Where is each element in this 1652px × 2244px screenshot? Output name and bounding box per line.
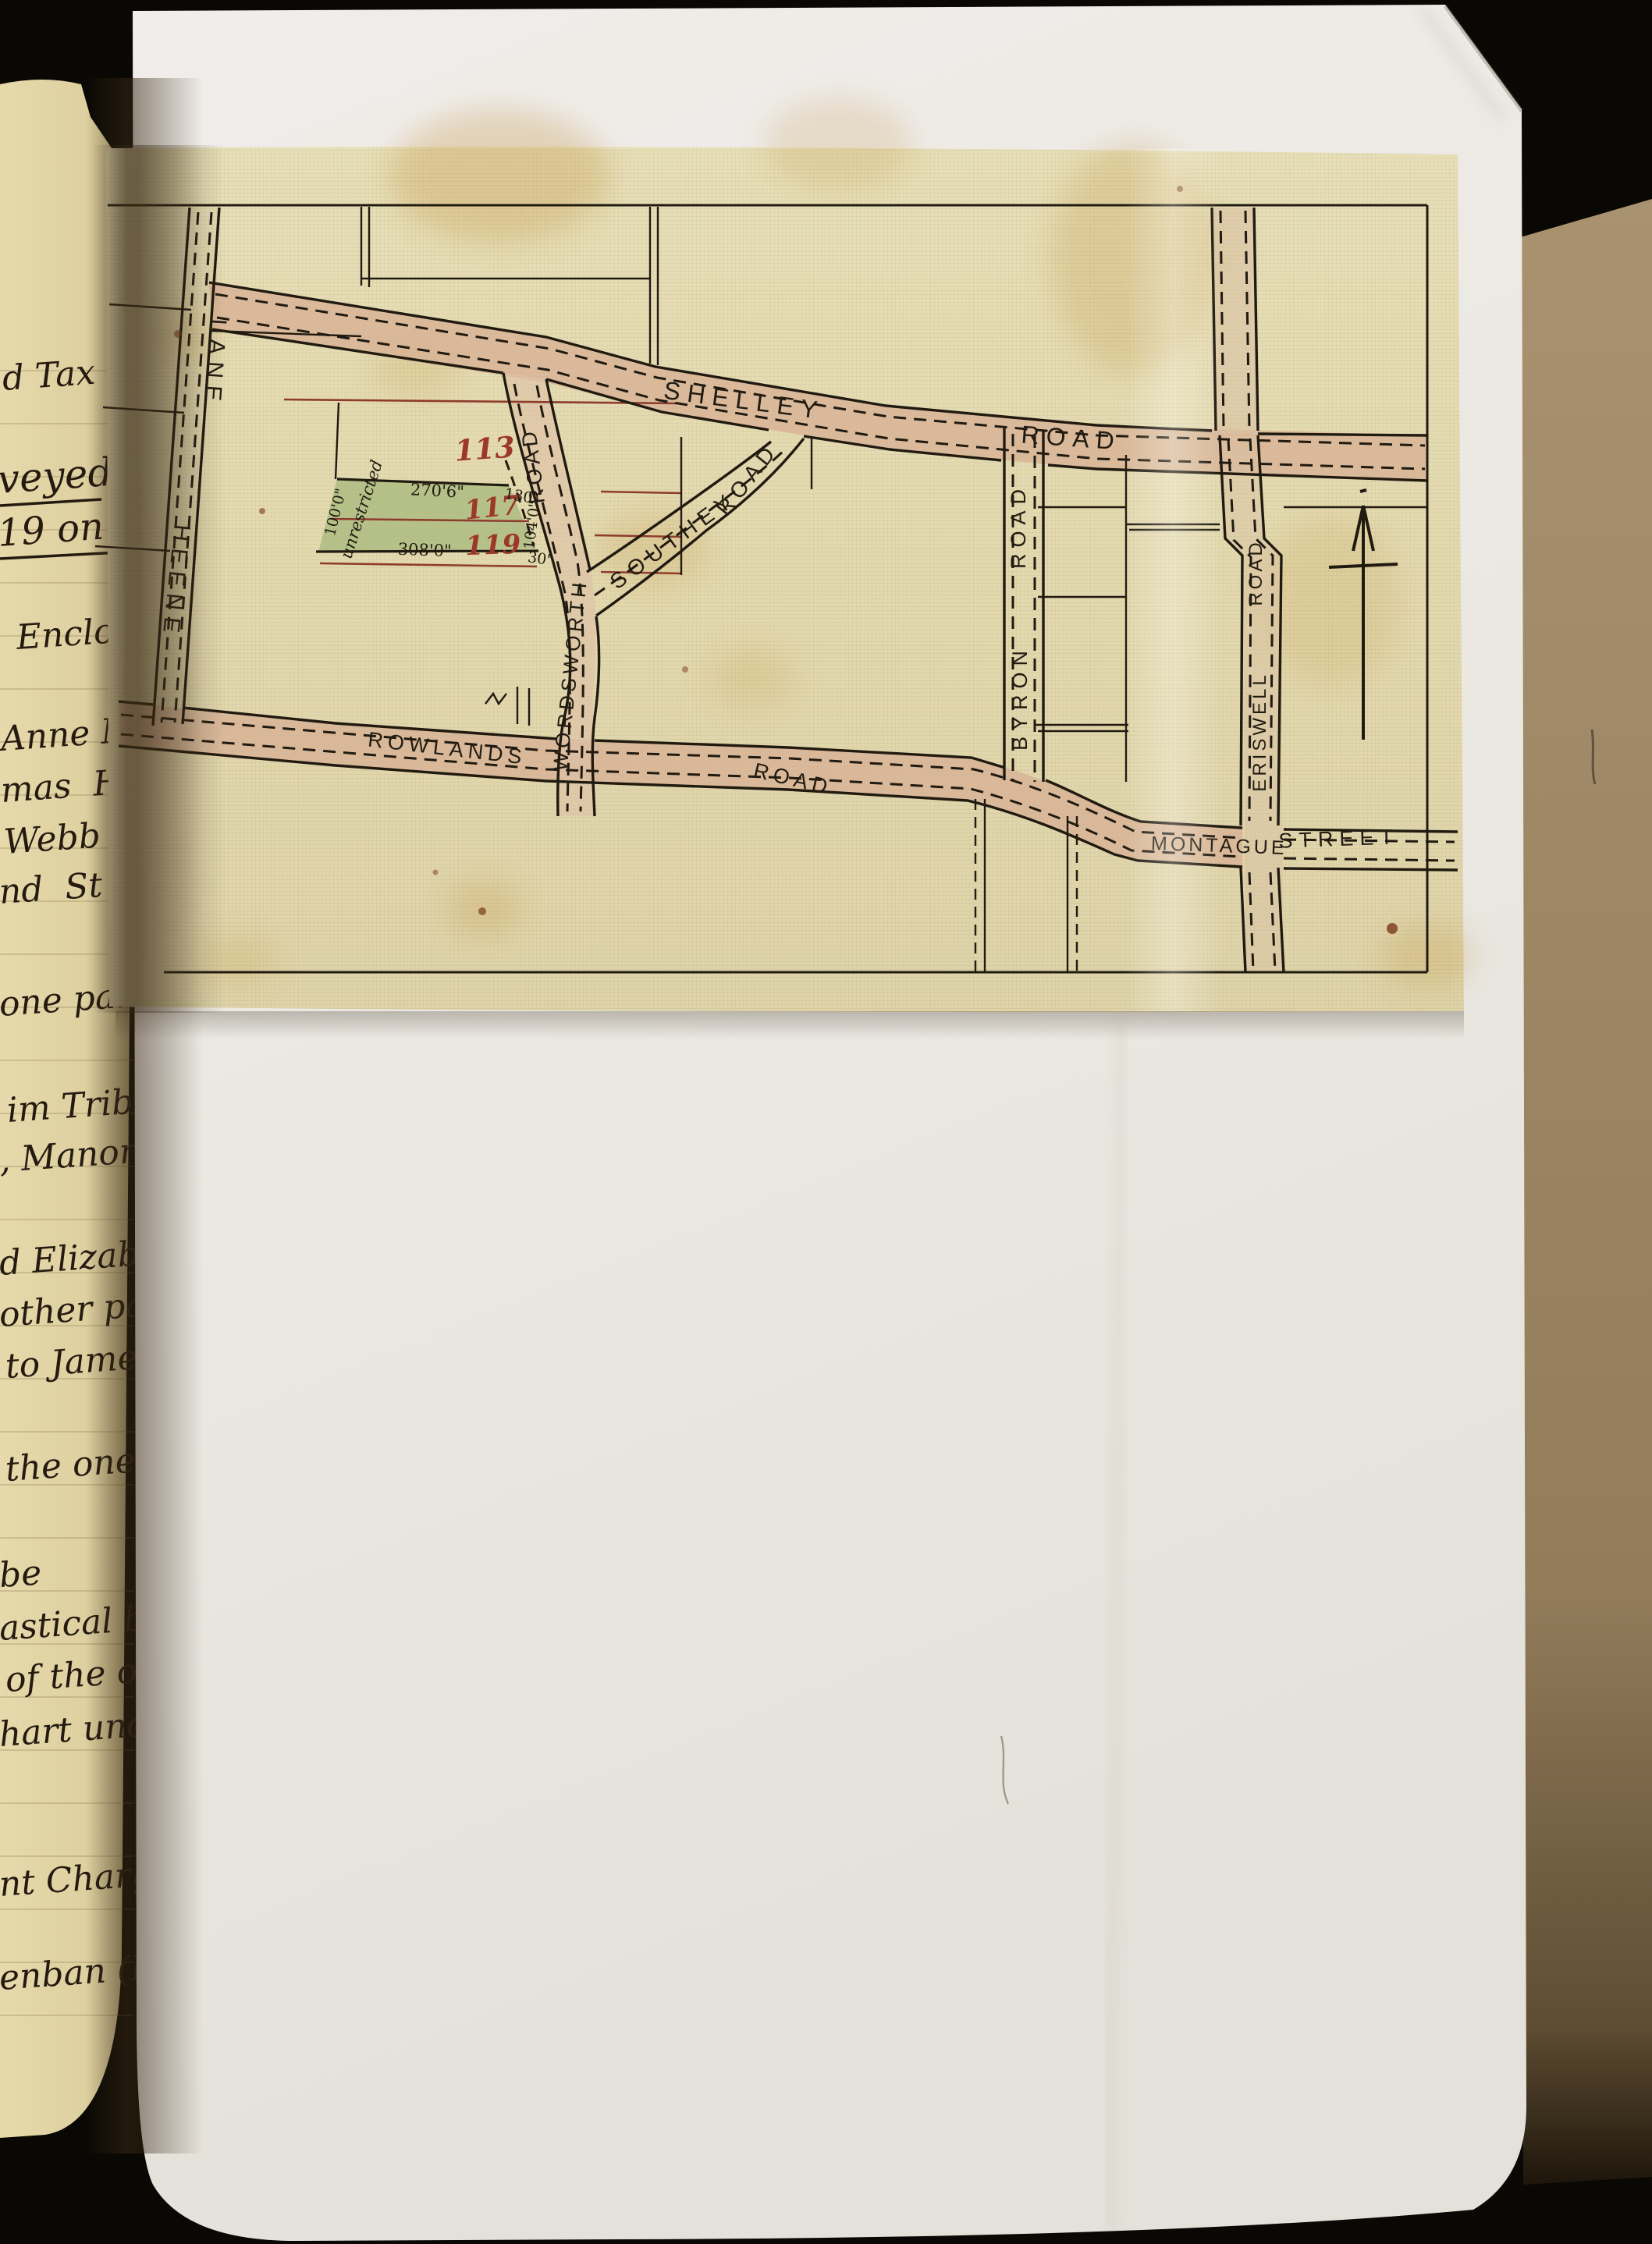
archival-photo: d Tax veyed 19 on t Enclosu Anne M mas H… (0, 0, 1652, 2244)
hw-line: d Tax (1, 353, 97, 399)
label-eriswell-road: ROAD (1245, 539, 1267, 605)
tracing-cloth: SHELLEY ROAD LANE HEENE ROAD WORDSWORTH … (95, 98, 1475, 1012)
plot-119: 119 (464, 529, 520, 562)
hw-line: be (0, 1553, 43, 1596)
label-byron-road: ROAD (1007, 483, 1030, 569)
gutter-shadow-deep (92, 145, 225, 1013)
label-eriswell: ERISWELL (1249, 672, 1270, 791)
cloth-shadow (115, 1011, 1464, 1039)
dim-tick-bottom: 30' (527, 549, 552, 569)
page-canvas: d Tax veyed 19 on t Enclosu Anne M mas H… (0, 0, 1652, 2244)
dim-bottom: 308'0" (397, 540, 452, 560)
dim-top: 270'6" (410, 480, 464, 502)
label-street: STREET (1278, 825, 1399, 852)
book-board (1518, 199, 1652, 2185)
plot-113: 113 (453, 429, 516, 467)
cloth-sheen (1124, 148, 1221, 1011)
label-byron: BYRON (1008, 644, 1032, 751)
